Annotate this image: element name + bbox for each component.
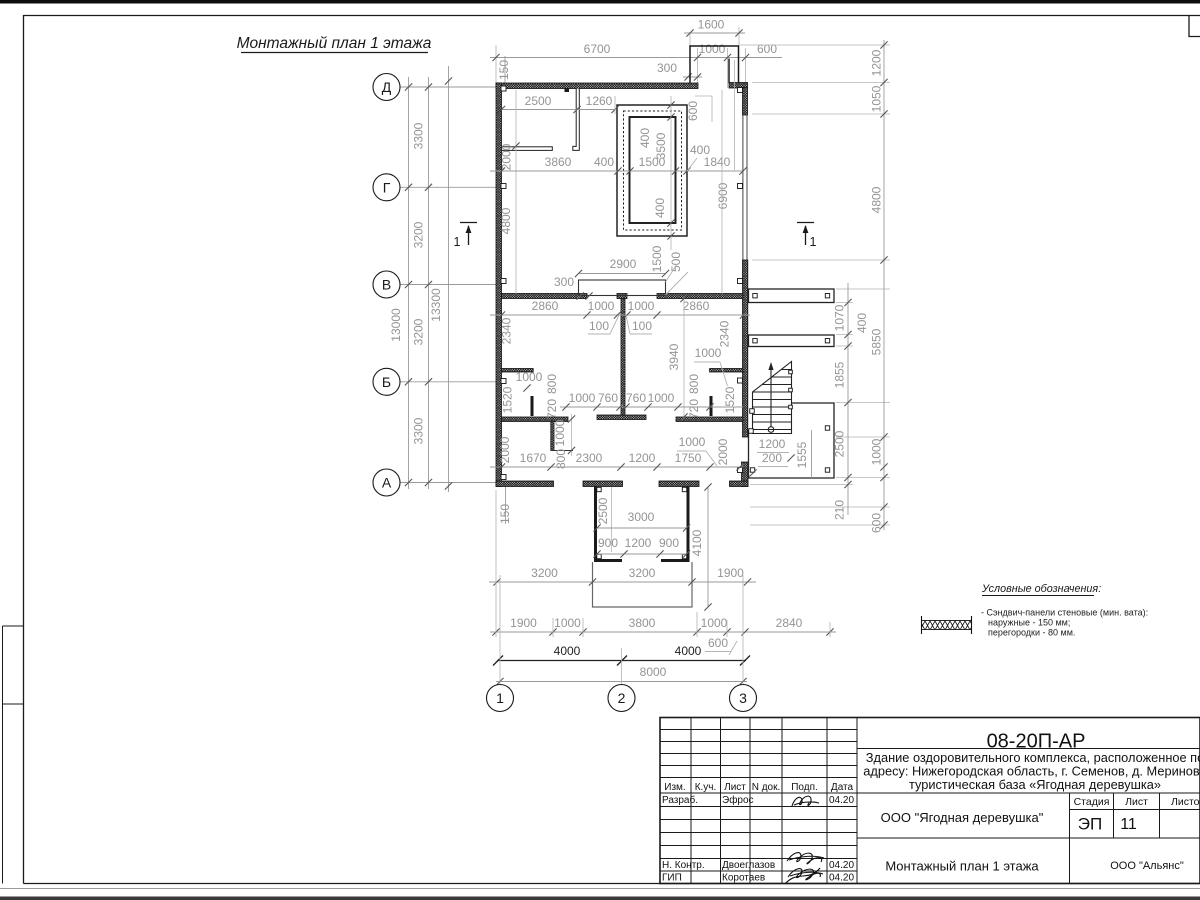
svg-text:1900: 1900: [510, 616, 537, 630]
svg-text:04.20: 04.20: [829, 860, 854, 871]
svg-text:Листов: Листов: [1171, 796, 1200, 808]
svg-text:210: 210: [833, 500, 847, 520]
svg-text:1: 1: [454, 235, 461, 249]
svg-text:Изм.: Изм.: [664, 782, 685, 793]
svg-text:4800: 4800: [499, 207, 513, 234]
svg-text:900: 900: [598, 536, 618, 550]
svg-text:1000: 1000: [516, 370, 543, 384]
svg-text:1: 1: [810, 235, 817, 249]
svg-text:2300: 2300: [576, 451, 603, 465]
svg-text:400: 400: [594, 155, 614, 169]
svg-text:ЭП: ЭП: [1078, 815, 1102, 834]
svg-text:Двоеглазов: Двоеглазов: [722, 860, 775, 871]
svg-text:1000: 1000: [870, 438, 884, 465]
svg-text:2340: 2340: [718, 320, 732, 347]
svg-text:8000: 8000: [640, 665, 667, 679]
svg-text:1000: 1000: [554, 616, 581, 630]
svg-text:1520: 1520: [723, 386, 737, 413]
svg-text:Б: Б: [382, 374, 391, 390]
svg-text:3300: 3300: [412, 417, 426, 444]
svg-text:перегородки - 80 мм.: перегородки - 80 мм.: [988, 628, 1075, 638]
svg-text:1855: 1855: [833, 361, 847, 388]
svg-text:2860: 2860: [532, 299, 559, 313]
svg-text:04.20: 04.20: [829, 873, 854, 884]
svg-text:Монтажный план 1 этажа: Монтажный план 1 этажа: [885, 859, 1039, 874]
svg-text:2840: 2840: [776, 616, 803, 630]
svg-text:2500: 2500: [525, 94, 552, 108]
svg-text:800: 800: [687, 374, 701, 394]
svg-text:1050: 1050: [870, 85, 884, 112]
svg-text:800: 800: [545, 374, 559, 394]
svg-text:3940: 3940: [667, 343, 681, 370]
svg-text:4100: 4100: [690, 529, 704, 556]
svg-text:К.уч.: К.уч.: [695, 782, 717, 793]
svg-text:3200: 3200: [412, 221, 426, 248]
svg-text:4800: 4800: [870, 186, 884, 213]
svg-text:6900: 6900: [716, 182, 730, 209]
svg-text:760: 760: [626, 391, 646, 405]
svg-text:100: 100: [632, 319, 652, 333]
svg-text:6700: 6700: [584, 42, 611, 56]
svg-text:4000: 4000: [675, 644, 702, 658]
svg-text:3200: 3200: [412, 318, 426, 345]
svg-text:300: 300: [554, 275, 574, 289]
svg-text:N док.: N док.: [752, 782, 781, 793]
svg-text:2000: 2000: [500, 143, 514, 170]
svg-text:150: 150: [498, 504, 512, 524]
svg-text:наружные - 150 мм;: наружные - 150 мм;: [988, 618, 1070, 628]
svg-text:720: 720: [545, 399, 559, 419]
svg-text:Дата: Дата: [831, 782, 854, 793]
svg-text:1000: 1000: [648, 391, 675, 405]
svg-text:2000: 2000: [716, 438, 730, 465]
svg-text:600: 600: [870, 513, 884, 533]
svg-text:1070: 1070: [833, 304, 847, 331]
svg-text:150: 150: [497, 60, 511, 80]
svg-text:1000: 1000: [588, 299, 615, 313]
svg-text:600: 600: [757, 42, 777, 56]
svg-text:1000: 1000: [569, 391, 596, 405]
svg-text:А: А: [382, 475, 392, 491]
svg-text:ООО "Ягодная деревушка": ООО "Ягодная деревушка": [881, 810, 1044, 825]
svg-text:13000: 13000: [389, 308, 403, 342]
svg-text:3860: 3860: [545, 155, 572, 169]
svg-text:1600: 1600: [698, 18, 725, 32]
svg-text:1000: 1000: [553, 419, 567, 446]
svg-text:4000: 4000: [554, 644, 581, 658]
svg-text:2340: 2340: [500, 317, 514, 344]
svg-text:1: 1: [496, 690, 504, 706]
svg-text:Подп.: Подп.: [791, 782, 818, 793]
svg-text:Монтажный план 1 этажа: Монтажный план 1 этажа: [237, 35, 432, 52]
svg-text:400: 400: [855, 313, 869, 333]
svg-text:1000: 1000: [699, 42, 726, 56]
svg-text:5850: 5850: [870, 328, 884, 355]
svg-text:- Сэндвич-панели стеновые (мин: - Сэндвич-панели стеновые (мин. вата):: [981, 608, 1148, 618]
svg-text:1260: 1260: [586, 94, 613, 108]
svg-text:1670: 1670: [520, 451, 547, 465]
svg-text:ГИП: ГИП: [662, 873, 682, 884]
svg-text:100: 100: [589, 319, 609, 333]
svg-text:Д: Д: [382, 79, 392, 95]
svg-text:720: 720: [687, 399, 701, 419]
svg-text:Н. Контр.: Н. Контр.: [662, 860, 705, 871]
svg-text:2860: 2860: [683, 299, 710, 313]
svg-text:04.20: 04.20: [829, 795, 854, 806]
svg-text:2: 2: [618, 690, 626, 706]
svg-text:2500: 2500: [596, 497, 610, 524]
svg-text:Эфрос: Эфрос: [722, 794, 754, 806]
svg-text:1750: 1750: [675, 451, 702, 465]
svg-text:1500: 1500: [650, 245, 664, 272]
svg-text:3800: 3800: [629, 616, 656, 630]
svg-text:2000: 2000: [498, 436, 512, 463]
svg-text:3000: 3000: [628, 510, 655, 524]
svg-text:3: 3: [739, 690, 747, 706]
svg-text:Разраб.: Разраб.: [662, 794, 698, 806]
svg-text:1200: 1200: [629, 451, 656, 465]
svg-text:Условные обозначения:: Условные обозначения:: [981, 583, 1101, 595]
svg-text:1200: 1200: [870, 49, 884, 76]
svg-text:Г: Г: [383, 179, 391, 195]
svg-text:400: 400: [653, 198, 667, 218]
svg-text:600: 600: [686, 101, 700, 121]
svg-text:1840: 1840: [704, 155, 731, 169]
svg-text:800: 800: [554, 449, 568, 469]
svg-text:1200: 1200: [625, 536, 652, 550]
svg-text:3200: 3200: [531, 566, 558, 580]
svg-text:1900: 1900: [717, 566, 744, 580]
svg-text:3200: 3200: [629, 566, 656, 580]
svg-text:ООО "Альянс": ООО "Альянс": [1110, 860, 1184, 872]
svg-text:900: 900: [659, 536, 679, 550]
svg-text:1000: 1000: [628, 299, 655, 313]
svg-text:500: 500: [669, 252, 683, 272]
svg-text:2900: 2900: [610, 257, 637, 271]
svg-text:3300: 3300: [412, 122, 426, 149]
svg-text:В: В: [382, 277, 391, 293]
svg-text:1555: 1555: [795, 441, 809, 468]
svg-text:200: 200: [762, 451, 782, 465]
svg-text:Коротаев: Коротаев: [722, 873, 765, 884]
svg-text:1000: 1000: [695, 346, 722, 360]
svg-text:Лист: Лист: [1125, 796, 1148, 808]
svg-text:Лист: Лист: [724, 782, 746, 793]
svg-text:300: 300: [657, 61, 677, 75]
svg-text:13300: 13300: [429, 288, 443, 322]
svg-text:1200: 1200: [759, 437, 786, 451]
svg-text:1520: 1520: [501, 386, 515, 413]
svg-text:760: 760: [598, 391, 618, 405]
svg-text:туристическая база «Ягодная де: туристическая база «Ягодная деревушка»: [909, 777, 1161, 792]
svg-text:1000: 1000: [679, 435, 706, 449]
svg-text:400: 400: [638, 128, 652, 148]
svg-text:600: 600: [708, 636, 728, 650]
svg-text:3500: 3500: [654, 132, 668, 159]
svg-text:400: 400: [690, 143, 710, 157]
svg-text:Стадия: Стадия: [1074, 796, 1110, 808]
svg-text:1000: 1000: [701, 616, 728, 630]
svg-text:11: 11: [1120, 816, 1137, 833]
